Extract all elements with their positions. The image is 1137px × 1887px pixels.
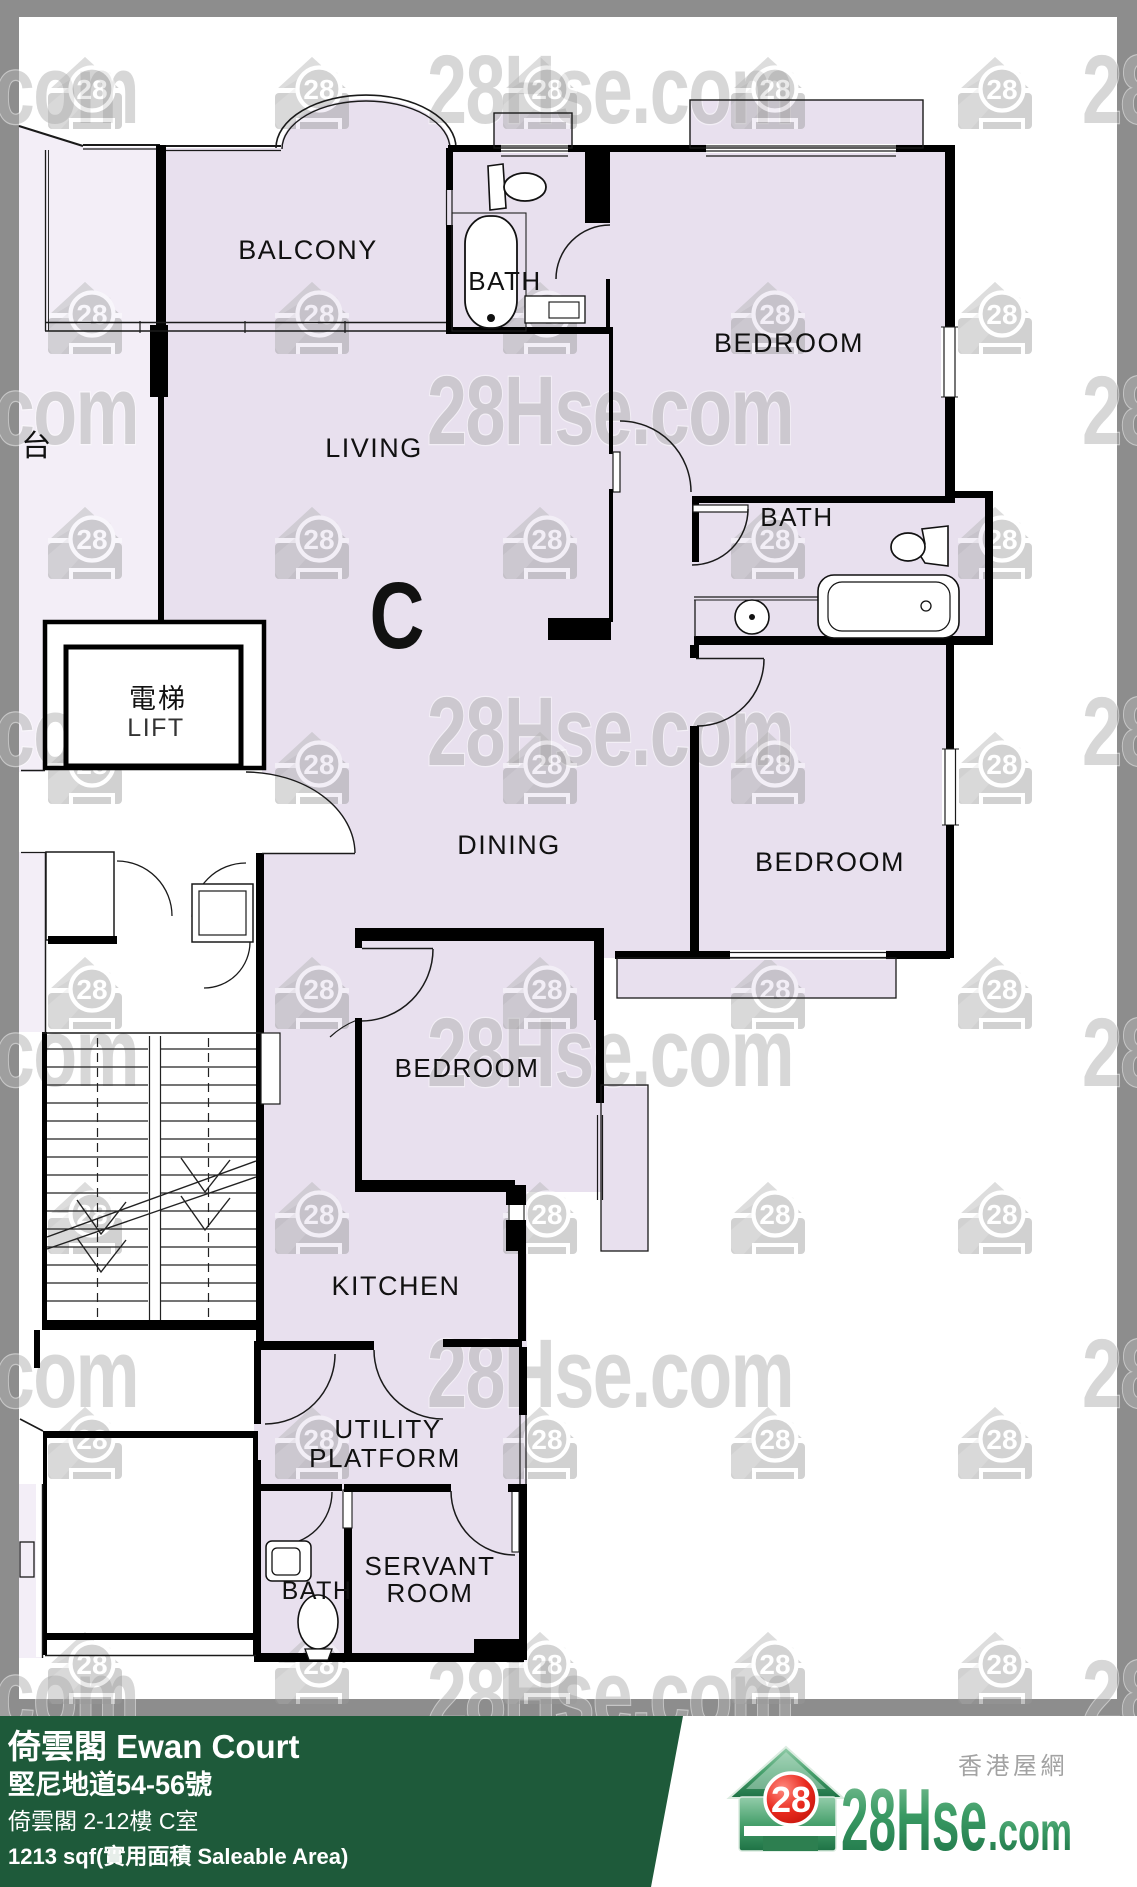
svg-text:BATH: BATH: [468, 266, 541, 296]
svg-text:ROOM: ROOM: [387, 1578, 474, 1608]
svg-text:28Hse.com: 28Hse.com: [1082, 998, 1137, 1107]
svg-text:28Hse.com: 28Hse.com: [1082, 677, 1137, 786]
svg-text:台: 台: [21, 430, 53, 463]
svg-text:堅尼地道54-56號: 堅尼地道54-56號: [8, 1769, 212, 1800]
svg-text:DINING: DINING: [457, 830, 561, 860]
svg-text:28Hse.com: 28Hse.com: [1082, 356, 1137, 465]
svg-text:BEDROOM: BEDROOM: [755, 847, 905, 877]
svg-text:UTILITY: UTILITY: [334, 1414, 441, 1444]
svg-text:香港屋網: 香港屋網: [958, 1753, 1068, 1780]
svg-text:C: C: [370, 563, 425, 669]
svg-text:PLATFORM: PLATFORM: [309, 1443, 461, 1473]
svg-text:28: 28: [771, 1779, 811, 1820]
svg-text:LIVING: LIVING: [325, 433, 423, 463]
svg-text:倚雲閣 Ewan Court: 倚雲閣 Ewan Court: [7, 1728, 300, 1765]
svg-text:28Hse.com: 28Hse.com: [1082, 1319, 1137, 1428]
svg-text:28Hse: 28Hse: [841, 1770, 987, 1869]
svg-text:BATH: BATH: [760, 502, 833, 532]
svg-text:SERVANT: SERVANT: [365, 1551, 496, 1581]
svg-text:1213 sqf(實用面積 Saleable Area): 1213 sqf(實用面積 Saleable Area): [8, 1844, 348, 1869]
svg-text:28Hse.com: 28Hse.com: [0, 1319, 138, 1428]
svg-text:BALCONY: BALCONY: [238, 235, 378, 265]
svg-text:BATH: BATH: [282, 1577, 353, 1605]
svg-text:倚雲閣 2-12樓 C室: 倚雲閣 2-12樓 C室: [8, 1808, 198, 1834]
svg-text:LIFT: LIFT: [127, 714, 184, 742]
svg-text:.com: .com: [988, 1802, 1072, 1862]
svg-text:28Hse.com: 28Hse.com: [1082, 35, 1137, 144]
svg-text:BEDROOM: BEDROOM: [714, 328, 864, 358]
svg-text:28Hse.com: 28Hse.com: [427, 1319, 793, 1428]
svg-text:KITCHEN: KITCHEN: [331, 1271, 460, 1301]
svg-text:電梯: 電梯: [129, 684, 187, 714]
svg-text:BEDROOM: BEDROOM: [395, 1053, 540, 1083]
